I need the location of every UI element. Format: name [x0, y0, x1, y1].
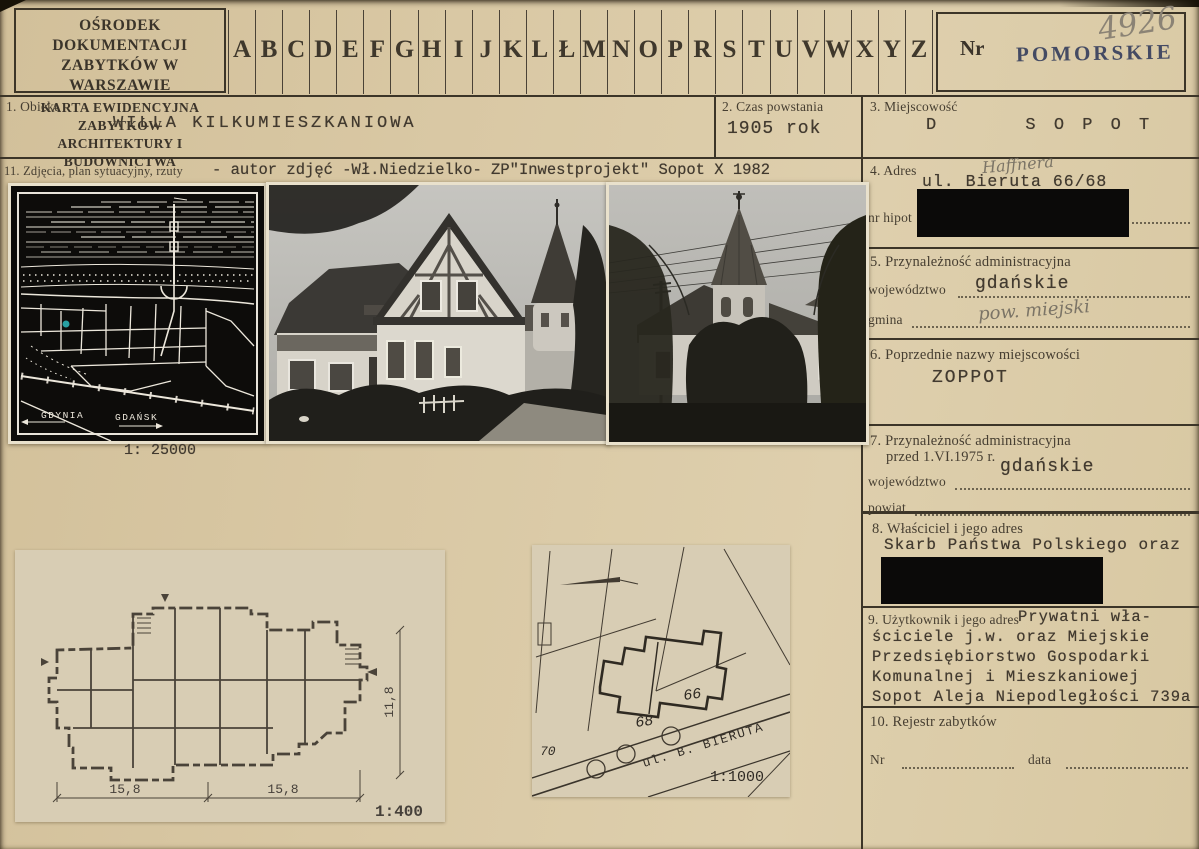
field-wlasciciel-value: Skarb Państwa Polskiego oraz: [884, 536, 1181, 554]
wojewodztwo-1975-label: województwo: [868, 474, 946, 490]
alphabet-letter-U: U: [771, 10, 798, 94]
alphabet-letter-J: J: [473, 10, 500, 94]
field-miejscowosc-label: 3. Miejscowość: [870, 99, 958, 115]
powiat-label: powiat: [868, 500, 906, 516]
heritage-record-card: OŚRODEK DOKUMENTACJI ZABYTKÓW W WARSZAWI…: [0, 0, 1199, 849]
rule-f1-f2: [714, 95, 716, 157]
alphabet-letter-G: G: [391, 10, 418, 94]
field-obiekt-label: 1. Obiekt: [6, 99, 58, 115]
photo1-dog: [299, 416, 309, 422]
gmina-label: gmina: [868, 312, 903, 328]
issuer-name-line2: ZABYTKÓW W WARSZAWIE: [16, 56, 224, 96]
floor-plan-scale: 1:400: [375, 803, 423, 821]
rule-f6-f7: [861, 424, 1199, 426]
field-adres-label: 4. Adres: [870, 163, 917, 179]
site-plan: 66 68 70 ul. B. BIERUTA 1:1000: [532, 545, 790, 797]
field-czas-value: 1905 rok: [727, 119, 821, 139]
rule-f5-f6: [861, 338, 1199, 340]
field-przynaleznosc-1975-label1: 7. Przynależność administracyjna: [870, 433, 1071, 450]
field-poprzednie-nazwy-value: ZOPPOT: [932, 368, 1009, 388]
alphabet-letter-O: O: [635, 10, 662, 94]
alphabet-letter-N: N: [608, 10, 635, 94]
site-plan-building-outline: [600, 631, 726, 717]
field-zdjecia-label: 11. Zdjęcia, plan sytuacyjny, rzuty: [4, 164, 183, 179]
gmina-handwritten: pow. miejski: [977, 296, 1090, 325]
rule-f4-f5: [861, 247, 1199, 249]
alphabet-letter-K: K: [500, 10, 527, 94]
map-label-gdynia: GDYNIA: [41, 410, 84, 421]
alphabet-index-strip: ABCDEFGHIJKLŁMNOPRSTUVWXYZ: [228, 10, 933, 94]
site-plan-street-name: ul. B. BIERUTA: [641, 721, 766, 771]
uzytkownik-line-2: Przedsiębiorstwo Gospodarki: [872, 648, 1150, 666]
floor-plan-dimension-lines: [53, 626, 404, 802]
site-plan-number-70: 70: [540, 744, 556, 759]
field-obiekt-value: WILLA KILKUMIESZKANIOWA: [113, 114, 417, 133]
field-rejestr-label: 10. Rejestr zabytków: [870, 714, 997, 731]
alphabet-letter-A: A: [228, 10, 256, 94]
map-site-marker-dot: [63, 321, 70, 328]
field-czas-label: 2. Czas powstania: [722, 99, 823, 115]
alphabet-letter-B: B: [256, 10, 283, 94]
wojewodztwo-label: województwo: [868, 282, 946, 298]
alphabet-letter-S: S: [716, 10, 743, 94]
floor-plan-dim-left: 15,8: [109, 782, 140, 797]
alphabet-letter-M: M: [581, 10, 608, 94]
issuer-name-line1: OŚRODEK DOKUMENTACJI: [16, 16, 224, 56]
alphabet-letter-Y: Y: [879, 10, 906, 94]
nr-hipot-dotted-line: [1132, 221, 1190, 224]
floor-plan: 15,8 15,8 11,8 1:400: [15, 550, 445, 822]
site-plan-number-66: 66: [682, 686, 702, 705]
field-miejscowosc-value: D S O P O T: [926, 116, 1153, 135]
alphabet-letter-T: T: [743, 10, 770, 94]
nr-label: Nr: [960, 36, 985, 61]
rejestr-nr-dotted-line: [902, 766, 1014, 769]
alphabet-letter-E: E: [337, 10, 364, 94]
floor-plan-dim-right: 15,8: [267, 782, 298, 797]
alphabet-letter-L: L: [527, 10, 554, 94]
alphabet-letter-R: R: [689, 10, 716, 94]
issuer-box: OŚRODEK DOKUMENTACJI ZABYTKÓW W WARSZAWI…: [14, 8, 226, 93]
site-plan-north-arrow: [560, 577, 620, 585]
field-nr-hipot-label: nr hipot: [868, 210, 912, 226]
site-plan-number-68: 68: [634, 713, 654, 732]
field-przynaleznosc-label: 5. Przynależność administracyjna: [870, 254, 1071, 271]
alphabet-letter-H: H: [419, 10, 446, 94]
wojewodztwo-value: gdańskie: [975, 274, 1069, 294]
floor-plan-stairs: [137, 618, 359, 664]
alphabet-letter-C: C: [283, 10, 310, 94]
alphabet-letter-F: F: [364, 10, 391, 94]
uzytkownik-line-0: Prywatni wła-: [1018, 608, 1152, 626]
uzytkownik-line-4: Sopot Aleja Niepodległości 739a: [872, 688, 1191, 706]
map-label-gdansk: GDAŃSK: [115, 412, 158, 423]
rejestr-nr-label: Nr: [870, 752, 885, 768]
alphabet-letter-P: P: [662, 10, 689, 94]
alphabet-letter-I: I: [446, 10, 473, 94]
rule-header-bottom: [0, 95, 1199, 97]
site-plan-scale: 1:1000: [710, 769, 764, 786]
uzytkownik-line-3: Komunalnej i Mieszkaniowej: [872, 668, 1140, 686]
region-stamp: POMORSKIE: [1016, 40, 1174, 68]
alphabet-letter-V: V: [798, 10, 825, 94]
alphabet-letter-D: D: [310, 10, 337, 94]
field-przynaleznosc-1975-label2: przed 1.VI.1975 r.: [886, 449, 996, 466]
wojewodztwo-1975-value: gdańskie: [1000, 457, 1094, 477]
redaction-box-adres: [917, 189, 1129, 237]
photo-villa-front: [266, 182, 610, 444]
alphabet-letter-W: W: [825, 10, 852, 94]
field-poprzednie-nazwy-label: 6. Poprzednie nazwy miejscowości: [870, 347, 1080, 364]
gmina-dotted-line: [912, 325, 1190, 328]
photo-credit-line: - autor zdjęć -Wł.Niedzielko- ZP"Inwestp…: [212, 161, 770, 179]
rule-f9-f10: [861, 706, 1199, 708]
map-scale: 1: 25000: [100, 442, 220, 459]
floor-plan-dim-height: 11,8: [382, 686, 397, 717]
alphabet-letter-Ł: Ł: [554, 10, 581, 94]
scan-edge-shadow: [1059, 0, 1199, 7]
wojewodztwo-1975-dotted-line: [955, 487, 1190, 490]
rejestr-data-dotted-line: [1066, 766, 1188, 769]
uzytkownik-line-1: ściciele j.w. oraz Miejskie: [872, 628, 1150, 646]
rejestr-data-label: data: [1028, 752, 1051, 768]
alphabet-letter-Z: Z: [906, 10, 933, 94]
field-uzytkownik-label: 9. Użytkownik i jego adres: [868, 612, 1019, 628]
location-map: GDYNIA GDAŃSK: [8, 183, 267, 444]
alphabet-letter-X: X: [852, 10, 879, 94]
redaction-box-wlasciciel: [881, 557, 1103, 604]
photo-villa-turret: [606, 182, 869, 445]
powiat-dotted-line: [915, 513, 1190, 516]
